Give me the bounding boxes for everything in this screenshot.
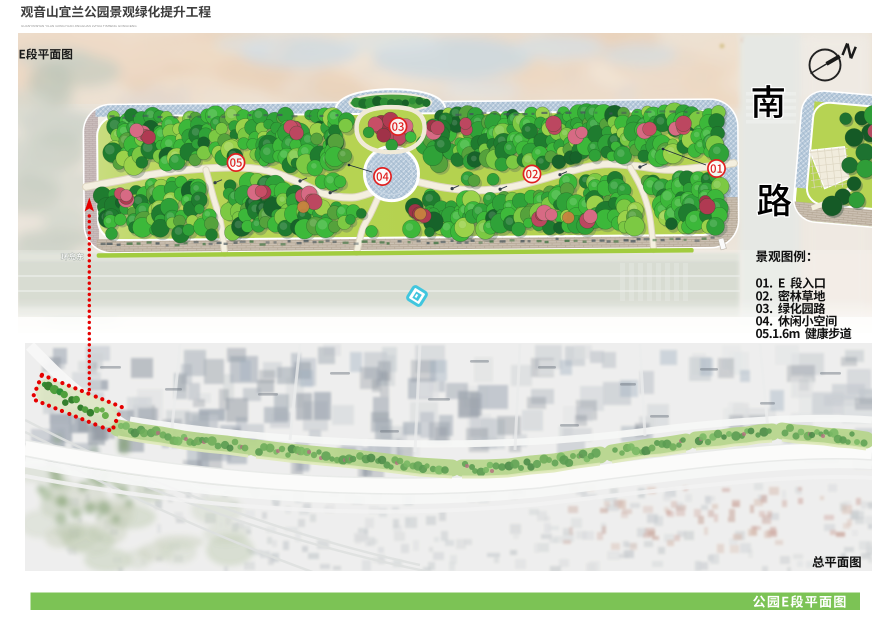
svg-text:GUANYINSHAN YILAN GONGYUAN JI: GUANYINSHAN YILAN GONGYUAN JINGGUAN LVHU…	[21, 24, 137, 28]
